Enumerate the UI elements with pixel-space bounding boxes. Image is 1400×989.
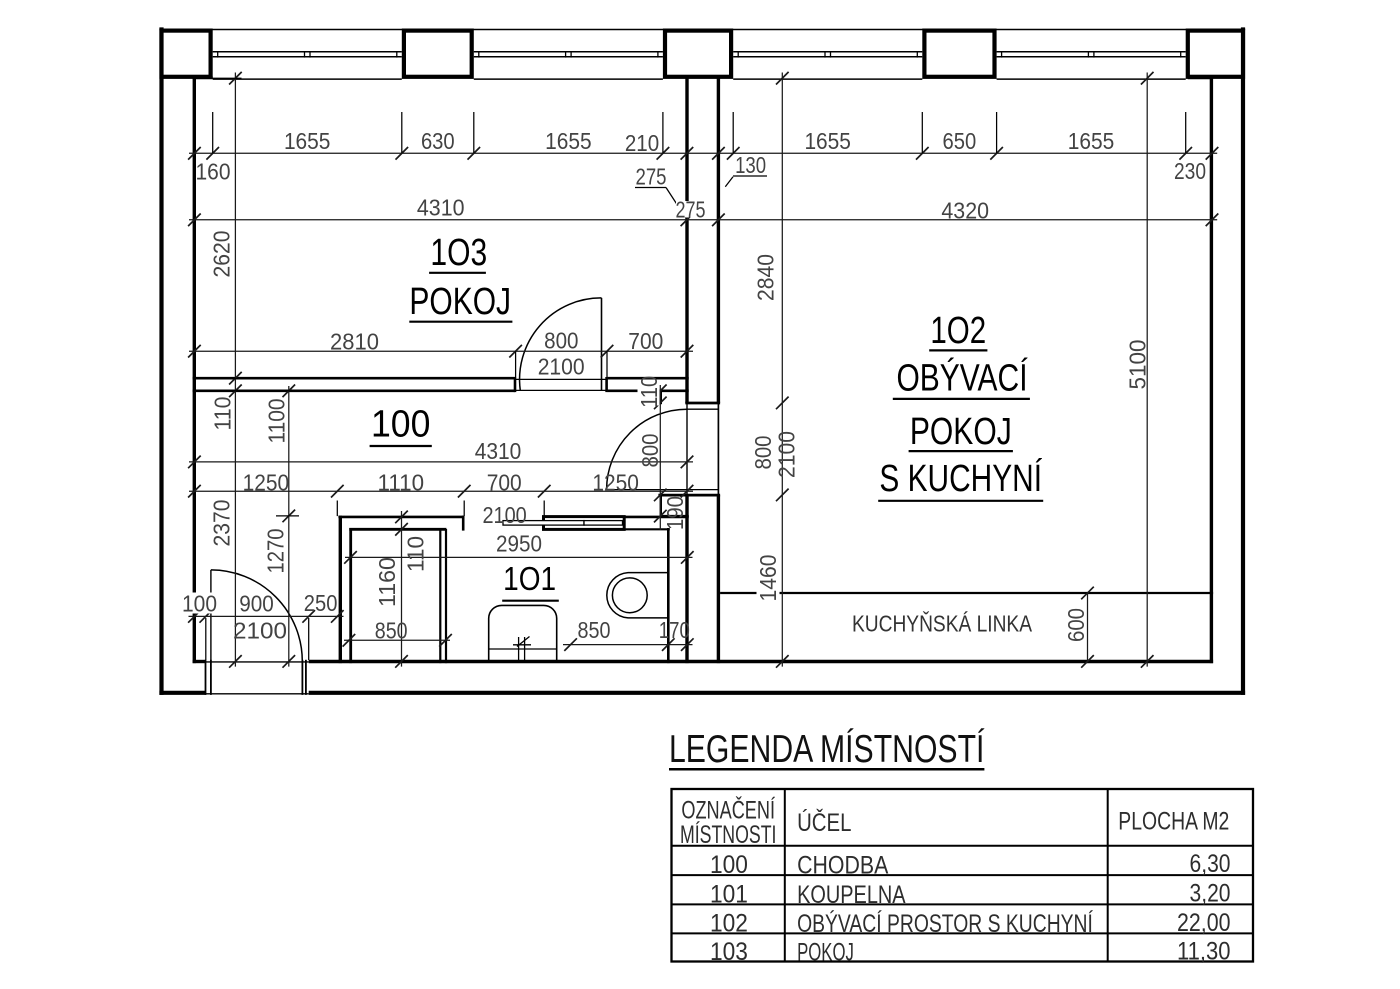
svg-text:100: 100 [182, 591, 217, 617]
svg-text:1655: 1655 [804, 128, 851, 154]
svg-text:1655: 1655 [1068, 128, 1115, 154]
svg-text:101: 101 [710, 880, 748, 908]
svg-text:700: 700 [628, 328, 663, 354]
svg-text:KOUPELNA: KOUPELNA [797, 881, 906, 909]
svg-text:4310: 4310 [417, 194, 465, 220]
svg-text:230: 230 [1174, 158, 1206, 184]
svg-text:6,30: 6,30 [1190, 850, 1231, 878]
svg-text:2840: 2840 [753, 254, 779, 301]
svg-text:1250: 1250 [243, 469, 290, 495]
svg-text:POKOJ: POKOJ [910, 411, 1012, 453]
svg-text:3,20: 3,20 [1190, 880, 1231, 908]
svg-text:1460: 1460 [755, 555, 781, 602]
svg-text:1O3: 1O3 [430, 232, 487, 274]
svg-text:160: 160 [196, 159, 231, 185]
svg-text:110: 110 [210, 397, 236, 431]
svg-text:275: 275 [636, 164, 667, 190]
svg-text:5100: 5100 [1125, 340, 1151, 390]
svg-text:102: 102 [710, 909, 748, 937]
svg-text:2950: 2950 [496, 531, 542, 557]
svg-text:110: 110 [403, 536, 429, 572]
svg-text:1655: 1655 [545, 128, 592, 154]
svg-text:850: 850 [375, 618, 408, 644]
svg-text:2810: 2810 [330, 329, 379, 355]
svg-text:1110: 1110 [378, 469, 425, 495]
svg-text:800: 800 [750, 436, 776, 470]
svg-text:KUCHYŇSKÁ LINKA: KUCHYŇSKÁ LINKA [852, 611, 1033, 637]
svg-text:100: 100 [710, 851, 748, 879]
svg-text:OBÝVACÍ PROSTOR S KUCHYNÍ: OBÝVACÍ PROSTOR S KUCHYNÍ [797, 909, 1093, 938]
svg-text:110: 110 [636, 376, 662, 408]
svg-text:POKOJ: POKOJ [797, 939, 854, 967]
svg-text:1270: 1270 [263, 529, 289, 574]
svg-text:PLOCHA M2: PLOCHA M2 [1118, 808, 1229, 836]
svg-text:1655: 1655 [284, 128, 331, 154]
svg-text:2100: 2100 [538, 353, 585, 379]
svg-text:4310: 4310 [475, 438, 522, 464]
svg-text:170: 170 [659, 617, 690, 643]
svg-text:700: 700 [487, 469, 522, 495]
svg-text:630: 630 [421, 128, 455, 154]
svg-text:850: 850 [578, 617, 611, 643]
svg-text:ÚČEL: ÚČEL [797, 808, 851, 837]
svg-text:POKOJ: POKOJ [409, 281, 511, 323]
svg-text:MÍSTNOSTI: MÍSTNOSTI [680, 820, 777, 849]
svg-text:2370: 2370 [209, 500, 235, 547]
svg-text:650: 650 [943, 128, 977, 154]
svg-text:S KUCHYNÍ: S KUCHYNÍ [879, 457, 1042, 500]
svg-text:210: 210 [625, 130, 659, 156]
svg-text:2100: 2100 [774, 431, 800, 478]
svg-text:22,00: 22,00 [1177, 909, 1231, 937]
svg-text:275: 275 [676, 196, 706, 222]
svg-text:1O2: 1O2 [930, 310, 986, 352]
svg-text:1O1: 1O1 [503, 560, 556, 597]
svg-text:OBÝVACÍ: OBÝVACÍ [896, 356, 1027, 399]
svg-text:1100: 1100 [264, 399, 290, 444]
svg-text:190: 190 [662, 496, 688, 530]
svg-text:800: 800 [637, 434, 663, 468]
svg-text:4320: 4320 [941, 198, 989, 224]
svg-text:2100: 2100 [233, 618, 287, 644]
svg-text:LEGENDA MÍSTNOSTÍ: LEGENDA MÍSTNOSTÍ [669, 728, 985, 771]
svg-text:103: 103 [710, 938, 748, 966]
svg-text:100: 100 [371, 404, 430, 446]
svg-text:1250: 1250 [592, 469, 639, 495]
svg-text:900: 900 [239, 591, 274, 617]
svg-text:130: 130 [735, 152, 766, 178]
svg-text:2620: 2620 [209, 231, 235, 278]
svg-text:2100: 2100 [482, 502, 526, 528]
svg-text:250: 250 [304, 590, 338, 616]
svg-text:CHODBA: CHODBA [797, 852, 888, 880]
svg-text:1160: 1160 [374, 557, 400, 607]
svg-text:600: 600 [1063, 608, 1089, 642]
svg-text:800: 800 [544, 328, 578, 354]
svg-text:11,30: 11,30 [1177, 937, 1231, 965]
